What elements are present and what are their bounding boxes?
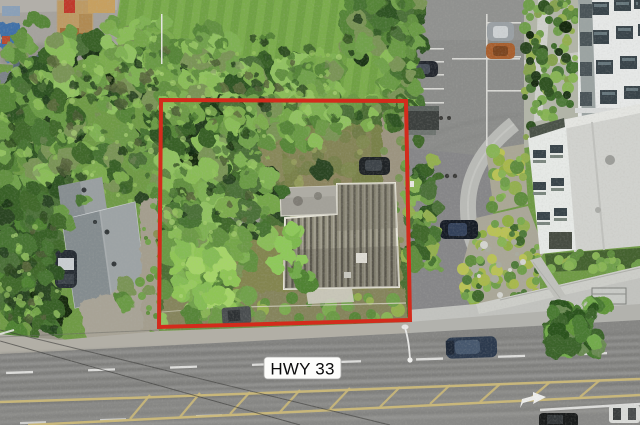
svg-text:HWY 33: HWY 33 — [270, 360, 334, 379]
